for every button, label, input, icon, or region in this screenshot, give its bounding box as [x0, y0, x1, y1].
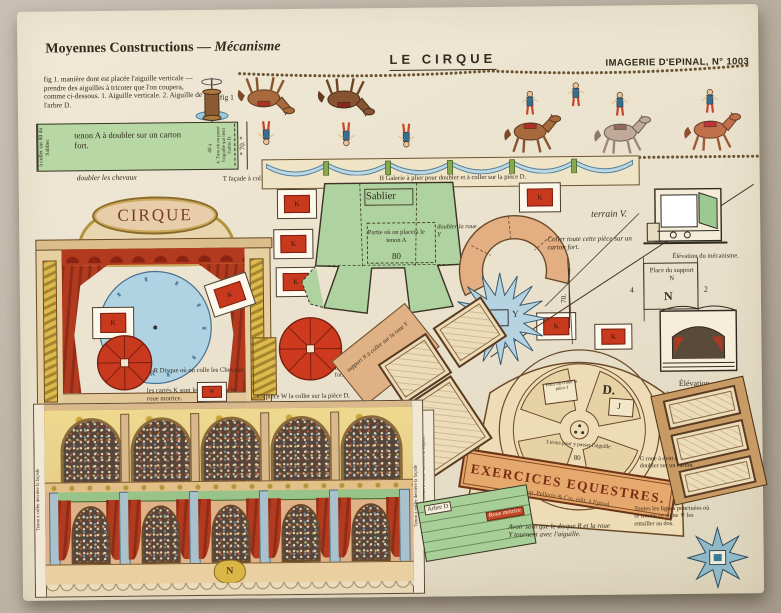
facade-title: CIRQUE: [117, 205, 192, 226]
lower-bay: [58, 492, 120, 565]
g-roue-note: G roue à dent à doubler sur un carton.: [640, 455, 698, 470]
lower-bay: [128, 491, 190, 564]
k-square-label: K: [213, 280, 246, 308]
horse-icon: [594, 115, 651, 154]
lower-tier: [45, 489, 414, 565]
wheel-num: 80: [565, 453, 590, 463]
toothed-wheel-gear: [686, 526, 749, 589]
pointillees-note: Toutes les lignes ponctuées où se trouve…: [634, 505, 714, 528]
photo-background: Moyennes Constructions — Mécanisme LE CI…: [0, 0, 781, 613]
k-square-label: K: [100, 313, 127, 333]
bay-curtain: [128, 500, 142, 560]
tenon-strip-main-label: tenon A à doubler sur un carton fort.: [74, 129, 184, 150]
upper-tier: [44, 407, 413, 483]
inverted-rider-icon: [338, 122, 354, 145]
rider-icon: [702, 89, 718, 112]
bay-arch: [71, 506, 111, 564]
sablier-title: Sablier: [351, 191, 411, 204]
facade-column-left: [43, 260, 58, 402]
roue-y-letter: Y: [512, 309, 519, 320]
upper-post: [260, 412, 270, 482]
cirque-facade-piece: CIRQUE R K K: [35, 181, 272, 409]
horse-frieze: [219, 52, 760, 168]
inverted-horse-icon: [318, 78, 375, 117]
n-monogram: N: [226, 566, 233, 578]
upper-post: [120, 414, 130, 484]
hanging-acrobat-icon: [398, 124, 414, 147]
red-drive-wheel: [94, 332, 155, 393]
sablier-inner-note: Partie où on placera le tenon A: [365, 229, 427, 245]
rider-icon: [612, 92, 628, 115]
facade-pylon-left: [35, 249, 65, 411]
upper-post: [330, 412, 340, 482]
upper-post: [190, 413, 200, 483]
upper-arch: [340, 415, 403, 484]
bay-arch: [211, 504, 251, 562]
rider-icon: [522, 91, 538, 114]
arbre-d-label: Arbre D: [424, 501, 452, 515]
lower-bay: [198, 490, 260, 563]
bay-curtain: [338, 497, 352, 557]
support-placement-caption: Place du support N: [648, 267, 696, 283]
series-title: Moyennes Constructions — Mécanisme: [45, 39, 280, 58]
fig1-instructions: fig 1. manière dont est placée l'aiguill…: [44, 74, 204, 110]
bay-arch: [281, 504, 321, 562]
n-cartouche: N: [214, 560, 246, 584]
bay-curtain: [198, 499, 212, 559]
gallery-main: N: [44, 401, 414, 597]
standing-rider-icon: [568, 83, 584, 106]
series-title-main: Moyennes Constructions: [45, 40, 193, 57]
mechanism-elevation-sketch: [627, 182, 736, 253]
upper-arch: [130, 417, 193, 486]
print-sheet: Moyennes Constructions — Mécanisme LE CI…: [17, 4, 764, 601]
pilaster: [399, 489, 411, 563]
horse-icon: [684, 112, 741, 151]
bay-arch: [351, 503, 391, 561]
upper-arch: [270, 416, 333, 485]
r-disque-note: R Disque où on colle les Chevaux.: [154, 367, 246, 376]
theatre-gallery-piece: Tenon à coller derrière la façade Tenon …: [33, 400, 425, 598]
w-square-label: W: [202, 386, 221, 399]
wheel-j-letter: J: [617, 401, 621, 412]
upper-arch: [200, 416, 263, 485]
gallery-scallop-edge: [46, 581, 414, 597]
bay-curtain: [268, 498, 282, 558]
tenon-strip-left-label: à coller sur 80 du Sablier.: [37, 124, 66, 170]
terrain-label: terrain V.: [591, 210, 627, 222]
upper-arch: [60, 418, 123, 487]
roue-motrice-label: Roue motrice: [485, 506, 524, 521]
gold-column-piece: [252, 337, 277, 395]
w-square-piece: W: [197, 382, 227, 402]
lower-bay: [338, 489, 400, 562]
horse-icon: [504, 114, 561, 153]
doubler-chevaux-note: doubler les chevaux: [77, 174, 137, 183]
soin-note: Avoir soin que le disque R et la roue Y …: [508, 522, 614, 540]
series-title-sub: — Mécanisme: [197, 39, 281, 55]
sablier-num: 80: [379, 251, 413, 262]
inverted-rider-icon: [258, 121, 274, 144]
gallery-side-label: Tenon à coller derrière la façade: [35, 415, 42, 585]
tenon-strip-num: 40 a: [207, 133, 214, 163]
dim-4: 4: [630, 285, 634, 294]
dim-70-label: 70.: [560, 268, 570, 328]
lower-bay: [268, 490, 330, 563]
dim-2: 2: [704, 285, 708, 294]
gallery-side-label: Tenon à coller derrière la façade: [413, 411, 420, 581]
inverted-horse-icon: [238, 77, 295, 116]
wheel-d-letter: D.: [602, 382, 616, 398]
bay-arch: [141, 505, 181, 563]
bay-curtain: [58, 500, 72, 560]
tenon-strip-piece: à coller sur 80 du Sablier. tenon A à do…: [36, 122, 238, 172]
